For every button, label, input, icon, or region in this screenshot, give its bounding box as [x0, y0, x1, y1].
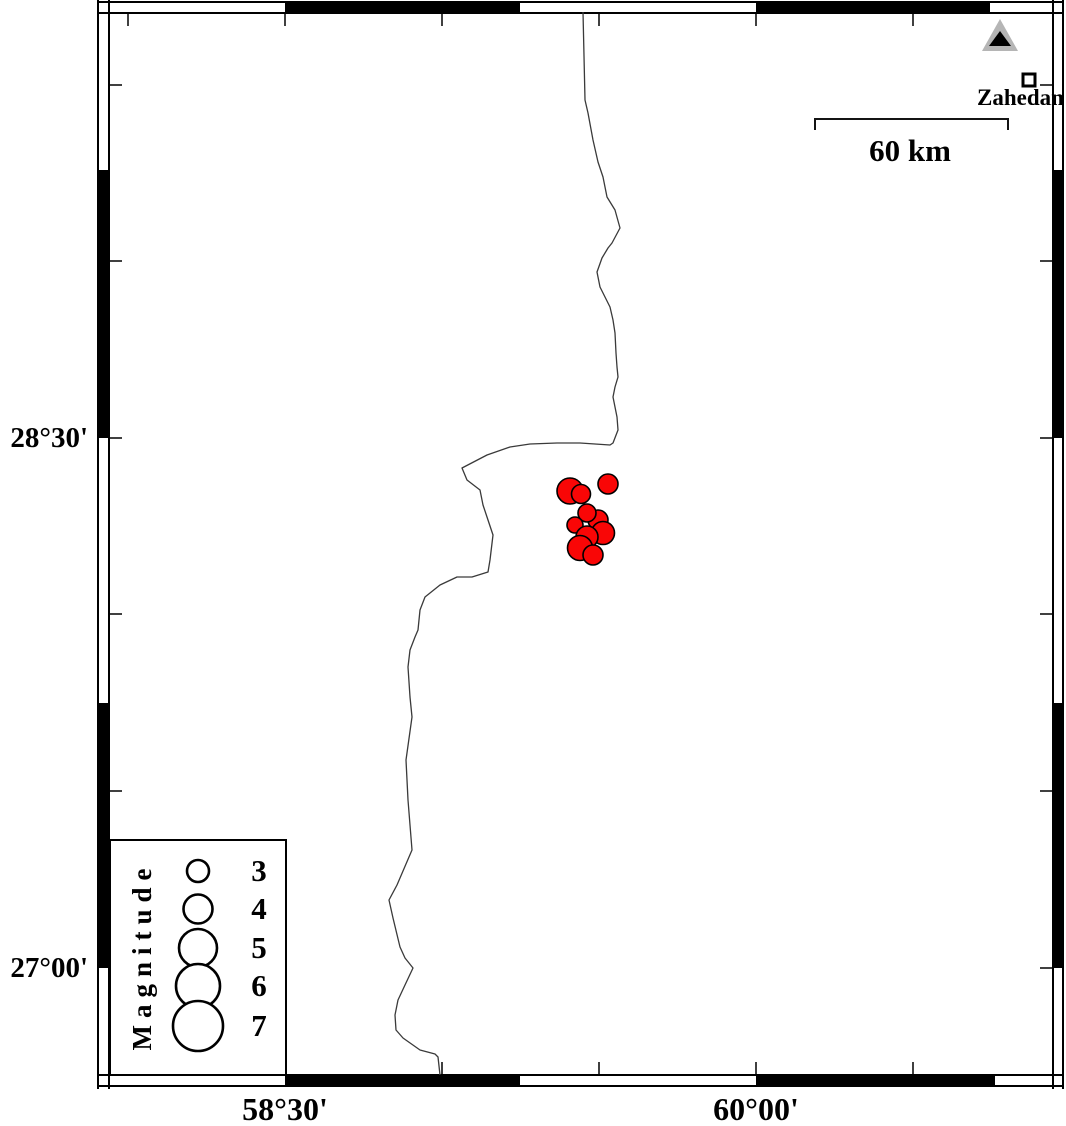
- legend-mag-5: 5: [237, 929, 281, 967]
- legend-mag-3: 3: [237, 852, 281, 890]
- frame-black-segment: [756, 2, 990, 13]
- legend-mag-4: 4: [237, 890, 281, 928]
- lon-label-60-00: 60°00': [674, 1092, 838, 1126]
- earthquake-marker: [598, 474, 618, 494]
- legend-mag-7: 7: [237, 1007, 281, 1045]
- frame-black-segment: [98, 170, 109, 438]
- legend-title-magnitude: Magnitude: [127, 850, 158, 1062]
- frame-black-segment: [756, 1075, 995, 1086]
- scale-bar-label: 60 km: [828, 133, 992, 169]
- legend-circle: [173, 1001, 223, 1051]
- scale-bracket: [815, 119, 1008, 130]
- legend-mag-6: 6: [237, 967, 281, 1005]
- map-stage: 28°30' 27°00' 58°30' 60°00' 60 km Zaheda…: [0, 0, 1066, 1126]
- earthquake-marker: [572, 485, 591, 504]
- city-label-zahedan: Zahedan: [977, 85, 1064, 111]
- lat-label-28-30: 28°30': [0, 420, 88, 456]
- legend-circle: [179, 929, 217, 967]
- frame-black-segment: [1053, 703, 1063, 968]
- frame-black-segment: [98, 703, 109, 968]
- lat-label-27-00: 27°00': [0, 950, 88, 986]
- legend-circle: [187, 860, 209, 882]
- earthquake-marker: [583, 545, 603, 565]
- frame-black-segment: [285, 2, 520, 13]
- legend-circle: [184, 895, 213, 924]
- lon-label-58-30: 58°30': [203, 1092, 367, 1126]
- frame-black-segment: [285, 1075, 520, 1086]
- frame-black-segment: [1053, 170, 1063, 438]
